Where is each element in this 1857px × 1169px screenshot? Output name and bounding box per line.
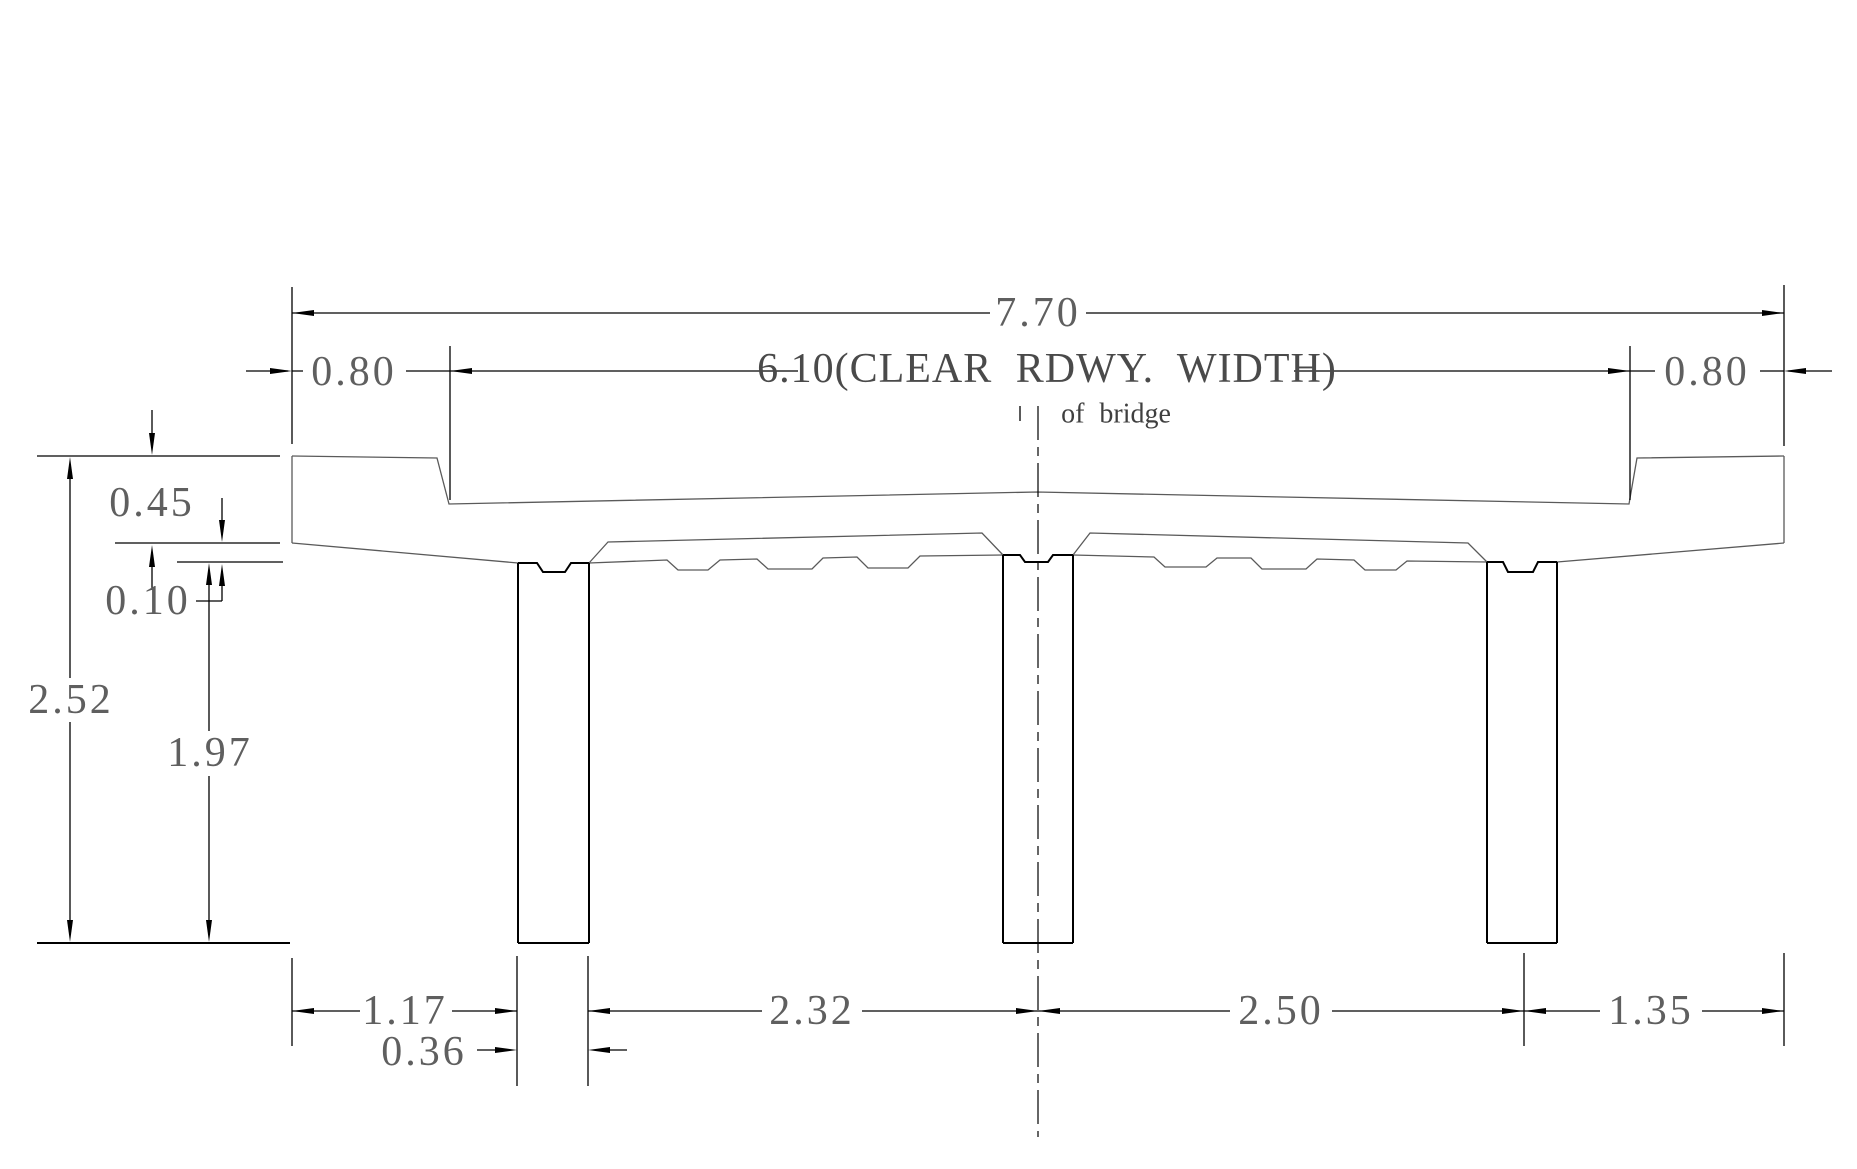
arrowhead xyxy=(495,1047,517,1053)
dim-clear-roadway: 6.10(CLEAR RDWY. WIDTH) xyxy=(757,346,1337,392)
arrowhead xyxy=(1016,1008,1038,1014)
arrowhead xyxy=(292,310,314,316)
left-bearing-recess xyxy=(518,563,589,572)
dim-span-right: 2.50 xyxy=(1238,988,1324,1034)
dim-left-overhang: 0.80 xyxy=(311,349,397,395)
arrowhead xyxy=(1038,1008,1060,1014)
dimension-text: 7.70 6.10(CLEAR RDWY. WIDTH) 0.80 0.80 o… xyxy=(28,290,1750,1075)
arrowhead xyxy=(588,1047,610,1053)
right-bearing-recess xyxy=(1487,562,1557,572)
arrowhead xyxy=(588,1008,610,1014)
arrowhead xyxy=(67,920,73,942)
dim-edge-to-first-column: 1.17 xyxy=(362,988,448,1034)
arrowhead xyxy=(1784,368,1806,374)
arrowhead xyxy=(219,520,225,542)
dim-right-overhang: 0.80 xyxy=(1664,349,1750,395)
arrowhead xyxy=(1502,1008,1524,1014)
arrowhead xyxy=(149,433,155,455)
left-column xyxy=(518,563,589,943)
dim-last-column-to-edge: 1.35 xyxy=(1608,988,1694,1034)
arrowhead xyxy=(1608,368,1630,374)
dim-column-width: 0.36 xyxy=(381,1029,467,1075)
arrowhead xyxy=(1524,1008,1546,1014)
dim-slab-thickness: 0.45 xyxy=(109,480,195,526)
centerline-note: of bridge xyxy=(1061,399,1171,430)
arrowhead xyxy=(292,1008,314,1014)
dim-haunch-depth: 0.10 xyxy=(105,578,191,624)
drawing-canvas: 7.70 6.10(CLEAR RDWY. WIDTH) 0.80 0.80 o… xyxy=(0,0,1857,1169)
arrowhead xyxy=(1762,310,1784,316)
right-column xyxy=(1487,562,1557,943)
arrowhead xyxy=(219,564,225,586)
arrowhead xyxy=(67,457,73,479)
dim-overall-depth: 2.52 xyxy=(28,677,114,723)
bridge-cross-section-drawing: 7.70 6.10(CLEAR RDWY. WIDTH) 0.80 0.80 o… xyxy=(0,0,1857,1169)
arrowhead xyxy=(206,563,212,585)
arrowhead xyxy=(206,920,212,942)
arrowhead xyxy=(1762,1008,1784,1014)
dim-overall-width: 7.70 xyxy=(995,290,1081,336)
arrowhead xyxy=(270,368,292,374)
arrowhead xyxy=(495,1008,517,1014)
bridge-centerline xyxy=(1020,406,1038,1137)
arrowhead xyxy=(149,545,155,567)
center-bearing-recess xyxy=(1003,555,1073,562)
dim-span-left: 2.32 xyxy=(769,988,855,1034)
arrowhead xyxy=(450,368,472,374)
dim-column-height: 1.97 xyxy=(167,730,253,776)
